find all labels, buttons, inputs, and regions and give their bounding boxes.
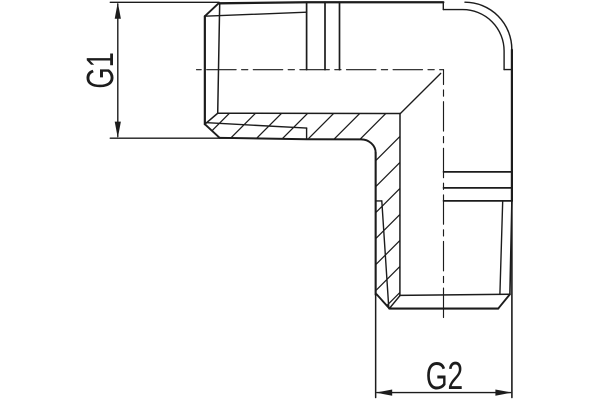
svg-text:G2: G2 xyxy=(426,355,464,398)
svg-text:G1: G1 xyxy=(80,52,122,89)
